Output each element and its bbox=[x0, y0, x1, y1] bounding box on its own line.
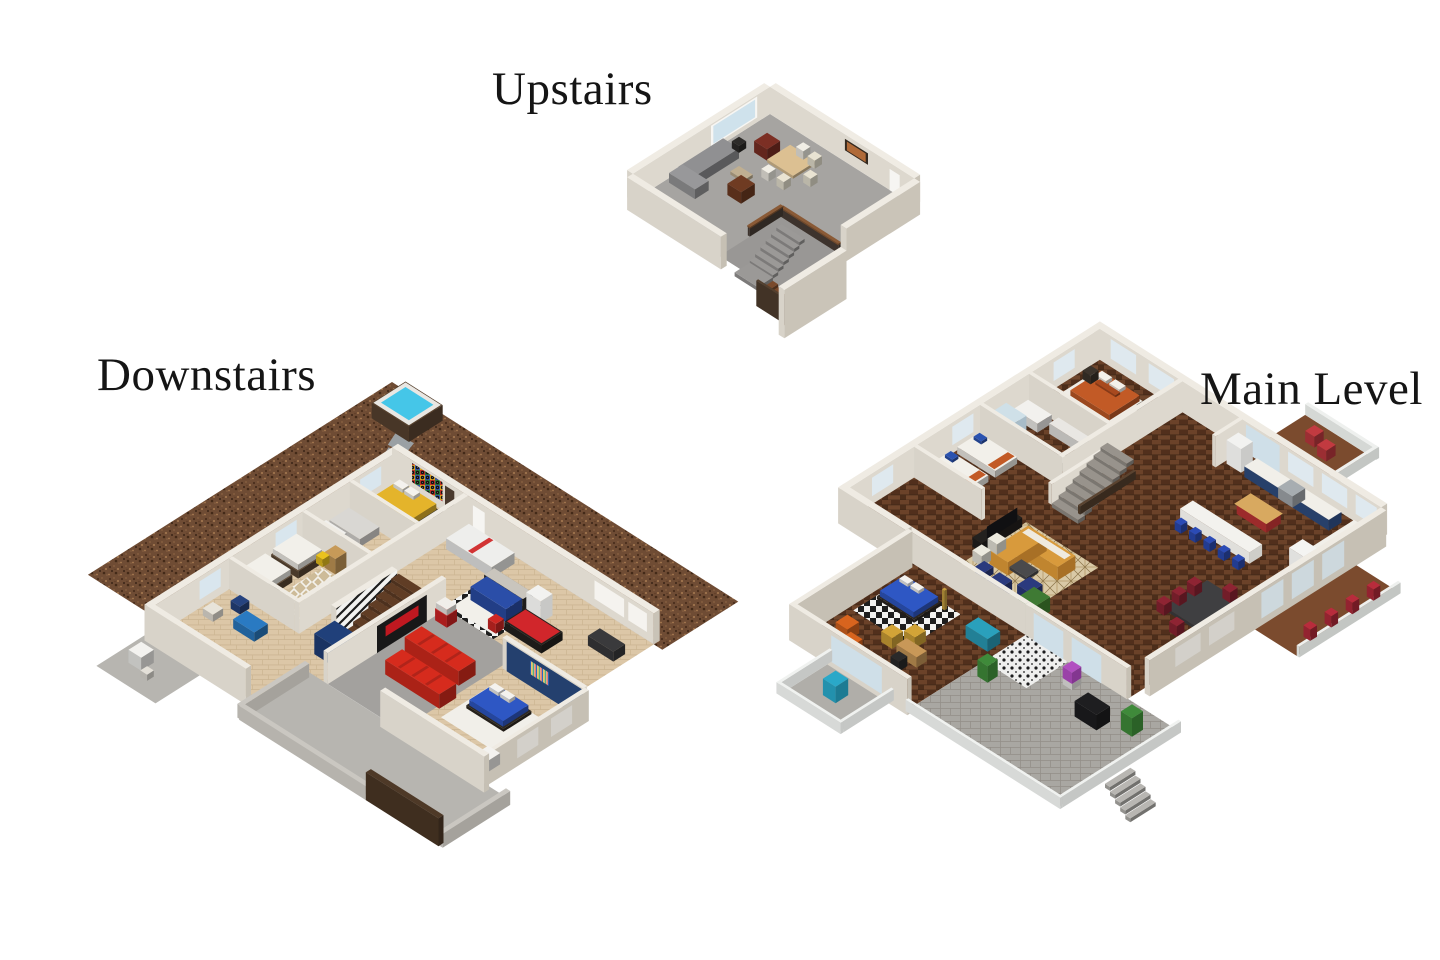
label-downstairs: Downstairs bbox=[97, 352, 316, 399]
floorplans-canvas bbox=[0, 0, 1440, 960]
floorplan-downstairs bbox=[88, 382, 738, 848]
floor-plan-sheet: Upstairs Downstairs Main Level bbox=[0, 0, 1440, 960]
label-main-level: Main Level bbox=[1200, 366, 1423, 413]
floor-lamp-gold bbox=[942, 588, 947, 611]
deck-stairs-down bbox=[1105, 768, 1156, 823]
floorplan-upstairs bbox=[627, 83, 920, 338]
label-upstairs: Upstairs bbox=[492, 66, 653, 113]
